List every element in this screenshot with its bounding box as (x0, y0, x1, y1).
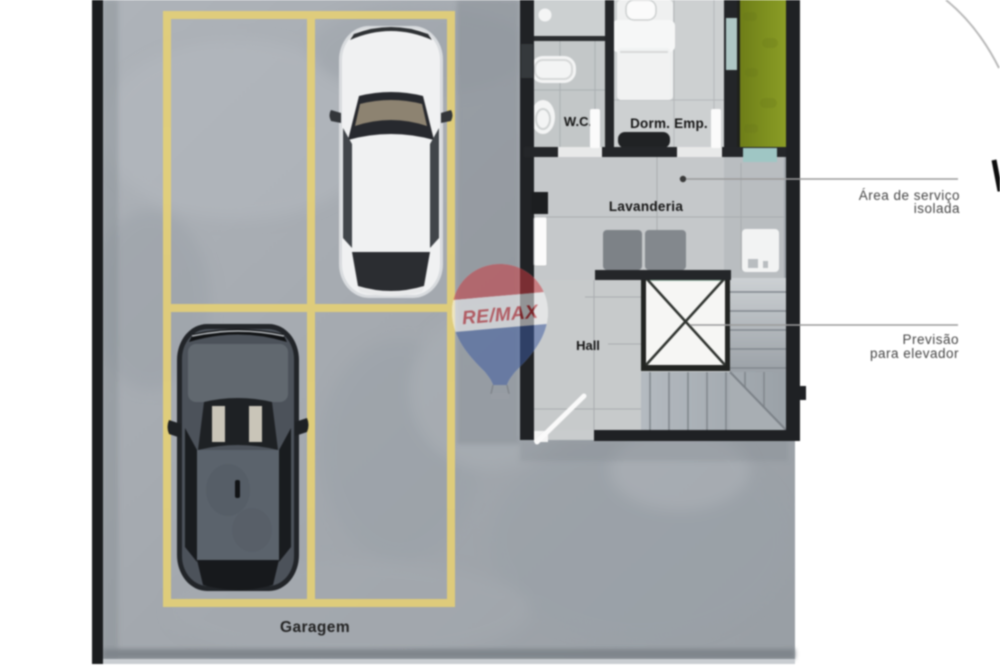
svg-text:para elevador: para elevador (870, 346, 959, 361)
svg-text:Previsão: Previsão (902, 332, 959, 347)
svg-text:Hall: Hall (576, 338, 600, 353)
svg-text:Garagem: Garagem (280, 619, 350, 636)
svg-text:Dorm. Emp.: Dorm. Emp. (630, 116, 708, 131)
svg-text:W.C.: W.C. (564, 114, 592, 129)
svg-text:isolada: isolada (914, 201, 960, 216)
svg-text:Lavanderia: Lavanderia (609, 199, 683, 214)
